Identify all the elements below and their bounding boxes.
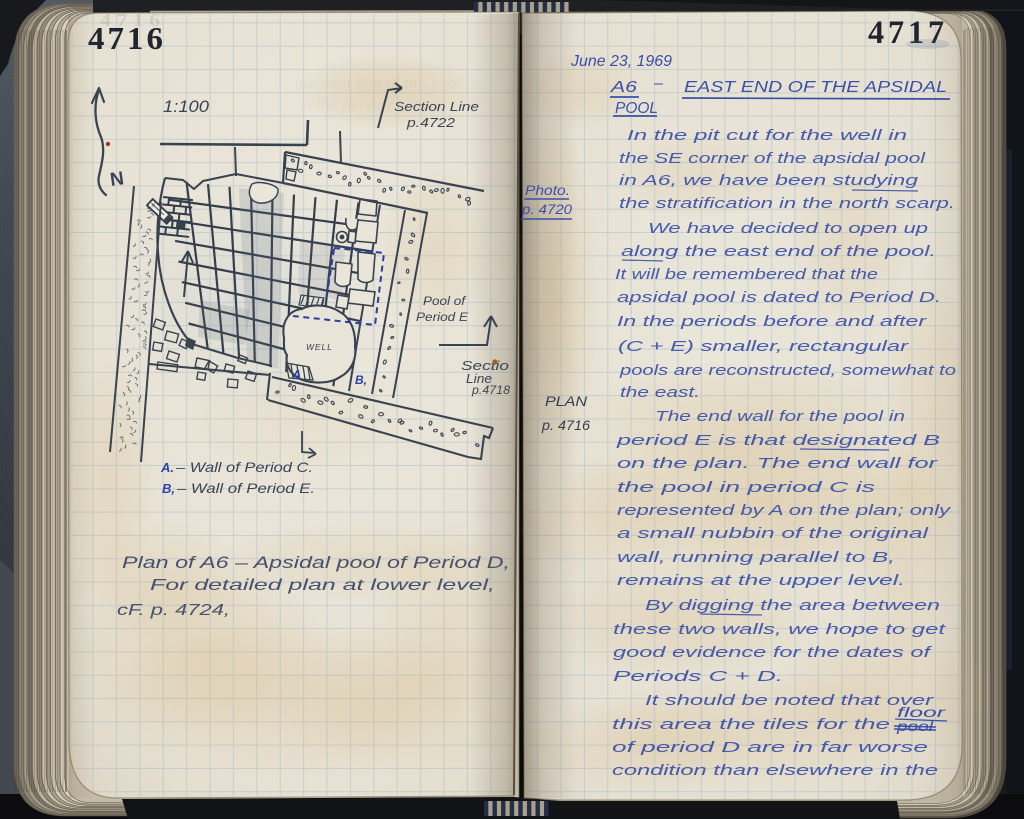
svg-text:Pool of: Pool of [423, 294, 467, 308]
svg-text:a small nubbin of the original: a small nubbin of the original [617, 525, 929, 542]
svg-text:wall, running parallel to B,: wall, running parallel to B, [617, 549, 895, 566]
svg-text:the SE corner of the apsidal p: the SE corner of the apsidal pool [619, 150, 926, 167]
svg-text:remains at the upper level.: remains at the upper level. [617, 572, 905, 589]
svg-text:the stratification in the nort: the stratification in the north scarp. [619, 195, 955, 212]
svg-text:For detailed plan at lower lev: For detailed plan at lower level, [150, 577, 495, 594]
svg-text:the east.: the east. [620, 384, 700, 401]
svg-text:of period D are in far worse: of period D are in far worse [612, 739, 928, 756]
svg-text:p.4718: p.4718 [471, 383, 510, 397]
svg-text:apsidal pool is dated to Perio: apsidal pool is dated to Period D. [617, 289, 941, 306]
svg-text:It should be noted that over: It should be noted that over [645, 692, 934, 709]
svg-text:pools are reconstructed, somew: pools are reconstructed, somewhat to [619, 362, 956, 379]
svg-text:Periods C + D.: Periods C + D. [613, 668, 783, 685]
svg-text:these two walls, we hope to ge: these two walls, we hope to get [613, 621, 946, 638]
svg-text:The end wall for the pool in: The end wall for the pool in [655, 408, 905, 425]
svg-text:the pool in period C is: the pool in period C is [617, 479, 876, 496]
svg-text:B,: B, [355, 373, 367, 387]
svg-text:Photo.: Photo. [525, 182, 570, 198]
svg-text:represented by A on the plan;: represented by A on the plan; only [617, 502, 952, 519]
svg-text:p. 4716: p. 4716 [541, 417, 590, 433]
svg-text:p. 4720: p. 4720 [521, 201, 572, 217]
svg-text:the east end of the pool: the east end of the pool [295, 75, 461, 91]
svg-text:good evidence for the dates of: good evidence for the dates of [613, 644, 933, 661]
svg-text:Period E: Period E [416, 310, 469, 324]
svg-text:in A6, we have been studying: in A6, we have been studying [619, 172, 919, 189]
svg-text:EAST END OF THE APSIDAL: EAST END OF THE APSIDAL [684, 79, 947, 96]
svg-text:A.: A. [160, 460, 174, 475]
svg-text:– Wall of Period E.: – Wall of Period E. [176, 480, 315, 496]
svg-text:–: – [653, 75, 663, 92]
svg-text:A: A [291, 367, 301, 382]
svg-text:B,: B, [162, 481, 175, 496]
svg-text:Plan of A6 – Apsidal pool of: Plan of A6 – Apsidal pool of Period D, [122, 553, 510, 572]
svg-text:(C + E) smaller, rectangular: (C + E) smaller, rectangular [618, 338, 909, 355]
svg-text:WELL: WELL [306, 342, 333, 352]
svg-text:In the pit cut for the well in: In the pit cut for the well in [627, 127, 907, 144]
svg-text:cF. p. 4724,: cF. p. 4724, [117, 602, 230, 619]
svg-text:N: N [109, 168, 126, 191]
svg-text:– Wall of Period C.: – Wall of Period C. [175, 459, 313, 475]
svg-text:condition than elsewhere in th: condition than elsewhere in the [612, 762, 938, 779]
svg-text:PLAN: PLAN [545, 393, 588, 409]
svg-text:In the periods before and afte: In the periods before and after [617, 313, 927, 330]
svg-text:We have decided to open up: We have decided to open up [648, 220, 928, 237]
svg-text:on the plan. The end wall for: on the plan. The end wall for [617, 455, 939, 472]
svg-text:this area the tiles for the: this area the tiles for the [612, 716, 890, 733]
svg-text:By digging the area between: By digging the area between [645, 597, 940, 614]
svg-text:Section Line: Section Line [394, 99, 479, 114]
svg-text:It will be remembered that the: It will be remembered that the [615, 266, 878, 283]
svg-text:1:100: 1:100 [163, 97, 210, 116]
svg-text:A6: A6 [610, 79, 637, 96]
svg-text:June 23, 1969: June 23, 1969 [570, 53, 672, 70]
svg-text:period E is that designated B: period E is that designated B [615, 432, 940, 449]
svg-text:4 7 1 6: 4 7 1 6 [100, 10, 160, 30]
svg-text:POOL: POOL [615, 100, 658, 117]
svg-text:p.4722: p.4722 [406, 115, 456, 130]
svg-text:along the east end of the pool: along the east end of the pool. [621, 243, 936, 260]
